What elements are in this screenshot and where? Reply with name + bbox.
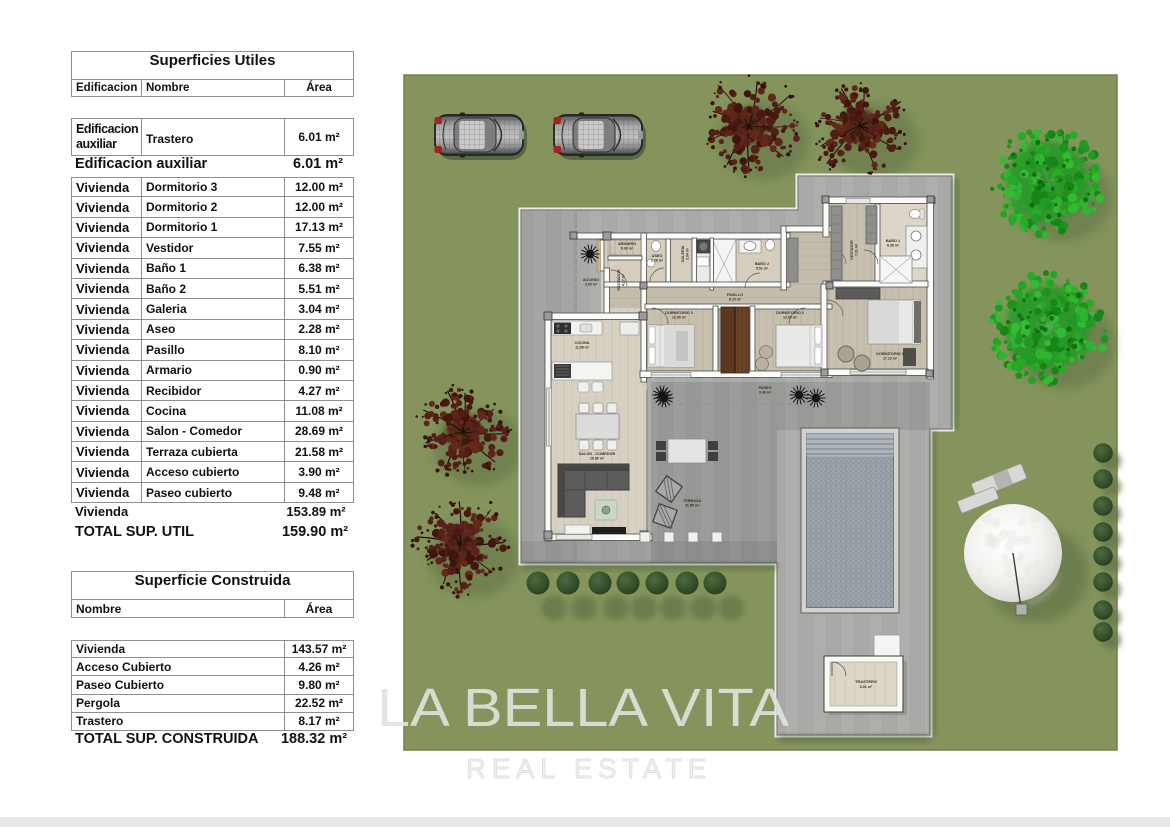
svg-text:TERRAZA: TERRAZA [683, 499, 701, 503]
svg-text:DORMITORIO 3: DORMITORIO 3 [665, 311, 693, 315]
svg-text:BAÑO 1: BAÑO 1 [886, 238, 900, 243]
svg-text:8.10 m²: 8.10 m² [729, 297, 742, 301]
svg-text:5.51 m²: 5.51 m² [756, 266, 769, 270]
svg-text:21.58 m²: 21.58 m² [685, 503, 700, 507]
svg-text:6.01 m²: 6.01 m² [860, 685, 873, 689]
svg-text:DORMITORIO 2: DORMITORIO 2 [776, 311, 804, 315]
svg-text:12.00 m²: 12.00 m² [672, 315, 687, 319]
svg-text:ASEO: ASEO [652, 254, 663, 258]
svg-text:VESTIDOR: VESTIDOR [850, 240, 854, 260]
svg-text:0.90 m²: 0.90 m² [621, 246, 634, 250]
svg-text:ACCESO: ACCESO [583, 278, 599, 282]
svg-text:PASILLO: PASILLO [727, 293, 743, 297]
svg-text:RECIBIDOR: RECIBIDOR [617, 269, 621, 291]
svg-text:SALON - COMEDOR: SALON - COMEDOR [579, 452, 616, 456]
svg-text:ARMARIO: ARMARIO [618, 242, 636, 246]
svg-text:GALERIA: GALERIA [681, 245, 685, 262]
svg-text:PASEO: PASEO [758, 386, 771, 390]
svg-text:9.48 m²: 9.48 m² [759, 390, 772, 394]
svg-text:REAL ESTATE: REAL ESTATE [466, 753, 712, 784]
svg-text:6.38 m²: 6.38 m² [887, 243, 900, 247]
svg-text:BAÑO 2: BAÑO 2 [755, 261, 769, 266]
svg-text:3.90 m²: 3.90 m² [585, 282, 598, 286]
svg-text:DORMITORIO 1: DORMITORIO 1 [876, 352, 904, 356]
svg-text:17.13 m²: 17.13 m² [883, 356, 898, 360]
svg-text:12.00 m²: 12.00 m² [783, 315, 798, 319]
svg-text:TRASTERO: TRASTERO [855, 679, 877, 684]
svg-text:4.27 m²: 4.27 m² [621, 273, 625, 286]
svg-text:28.69 m²: 28.69 m² [590, 456, 605, 460]
svg-text:2.28 m²: 2.28 m² [651, 258, 664, 262]
svg-text:11.08 m²: 11.08 m² [575, 345, 590, 349]
svg-text:3.04 m²: 3.04 m² [685, 247, 689, 260]
svg-text:7.31 m²: 7.31 m² [854, 243, 858, 256]
svg-text:LA BELLA VITA: LA BELLA VITA [377, 678, 789, 738]
svg-text:COCINA: COCINA [575, 341, 590, 345]
